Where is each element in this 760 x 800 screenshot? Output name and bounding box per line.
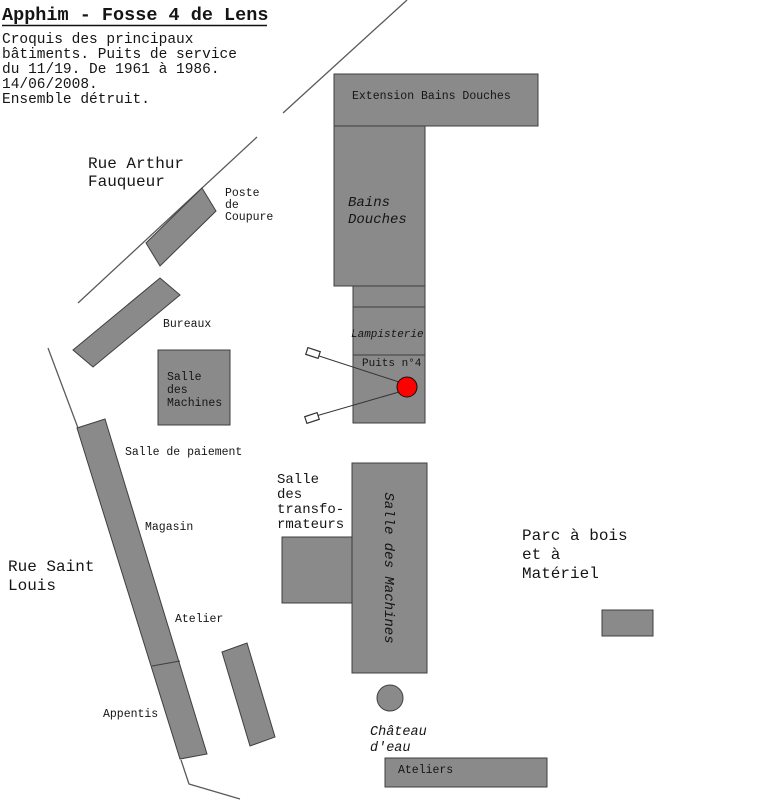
street-label-rue-arthur-fauqueur: Rue Arthur <box>88 155 184 173</box>
label-atelier: Atelier <box>175 613 223 626</box>
label-puits-n4: Puits n°4 <box>362 358 422 370</box>
label-appentis: Appentis <box>103 708 158 721</box>
label-salle-des-transformateurs: transfo- <box>277 502 344 518</box>
street-label-rue-arthur-fauqueur: Fauqueur <box>88 173 165 191</box>
area-label-parc-a-bois: Parc à bois <box>522 527 628 545</box>
road-rue-saint-louis-lower <box>181 760 240 799</box>
label-salle-des-machines-small: Salle <box>167 371 202 384</box>
parc-shed-building <box>602 610 653 636</box>
notes-line: bâtiments. Puits de service <box>2 47 237 63</box>
shed-building <box>222 643 275 746</box>
area-label-parc-a-bois: Matériel <box>522 565 599 583</box>
survey-marker-upper <box>306 348 321 359</box>
label-ateliers: Ateliers <box>398 764 453 777</box>
label-salle-des-transformateurs: rmateurs <box>277 517 344 533</box>
area-label-parc-a-bois: et à <box>522 546 561 564</box>
puits-shaft-dot <box>397 377 417 397</box>
label-bains-douches: Douches <box>348 212 407 228</box>
label-salle-des-transformateurs: Salle <box>277 472 319 488</box>
label-poste-de-coupure: Coupure <box>225 211 273 224</box>
salle-des-transformateurs-building <box>282 537 353 603</box>
label-salle-des-machines-small: des <box>167 384 188 397</box>
label-salle-de-paiement: Salle de paiement <box>125 446 242 459</box>
street-label-rue-saint-louis: Rue Saint <box>8 558 94 576</box>
label-salle-des-machines-vertical: Salle des Machines <box>380 492 396 643</box>
label-bureaux: Bureaux <box>163 318 211 331</box>
label-lampisterie: Lampisterie <box>351 329 424 341</box>
road-rue-saint-louis-upper <box>48 348 78 428</box>
chateau-deau-building <box>377 685 403 711</box>
label-salle-des-machines-small: Machines <box>167 397 222 410</box>
street-label-rue-saint-louis: Louis <box>8 577 56 595</box>
label-extension-bains-douches: Extension Bains Douches <box>352 90 511 103</box>
label-chateau-deau: Château <box>370 725 427 740</box>
site-plan-canvas: Apphim - Fosse 4 de Lens Croquis des pri… <box>0 0 760 800</box>
label-salle-des-transformateurs: des <box>277 487 302 503</box>
survey-marker-lower <box>305 413 320 424</box>
notes-line: du 11/19. De 1961 à 1986. <box>2 62 220 78</box>
site-plan-page: Apphim - Fosse 4 de Lens Croquis des pri… <box>0 0 760 800</box>
page-title: Apphim - Fosse 4 de Lens <box>2 5 268 26</box>
notes-line: Croquis des principaux <box>2 32 194 48</box>
poste-de-coupure-building <box>146 188 216 266</box>
label-magasin: Magasin <box>145 521 193 534</box>
notes-line: Ensemble détruit. <box>2 92 150 108</box>
notes-line: 14/06/2008. <box>2 77 98 93</box>
label-chateau-deau: d'eau <box>370 741 411 756</box>
label-bains-douches: Bains <box>348 195 390 211</box>
